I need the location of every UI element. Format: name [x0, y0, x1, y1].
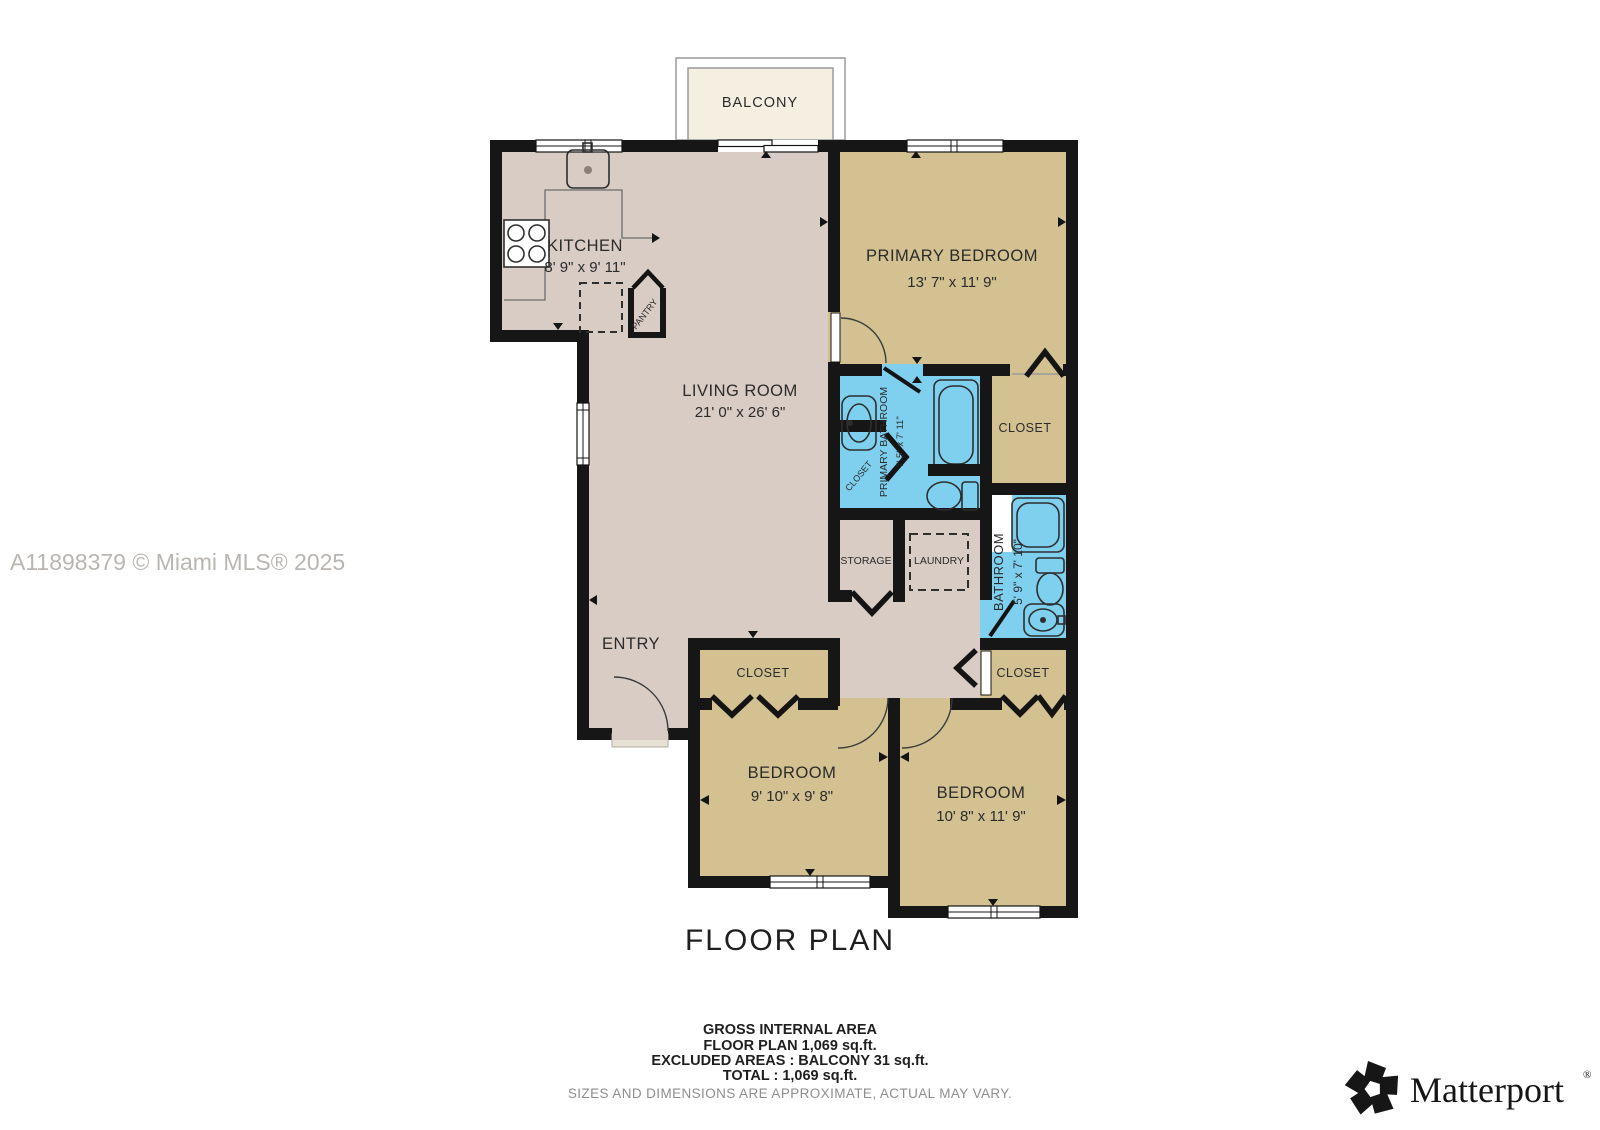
primary-bathroom-label: PRIMARY BATHROOM [878, 387, 890, 497]
footer-area-summary: GROSS INTERNAL AREA FLOOR PLAN 1,069 sq.… [568, 1022, 1012, 1101]
closet-bed1-label: CLOSET [736, 666, 789, 680]
closet2-door-leaf [981, 651, 991, 695]
matterport-reg-mark: ® [1583, 1069, 1591, 1081]
storage-label: STORAGE [840, 555, 891, 567]
bathroom-dims: 5' 9" x 7' 10" [1011, 539, 1025, 605]
matterport-logo: Matterport ® [1344, 1061, 1592, 1119]
matterport-wordmark: Matterport [1410, 1070, 1564, 1110]
living-room-dims: 21' 0" x 26' 6" [695, 404, 786, 421]
mls-watermark: A11898379 © Miami MLS® 2025 [10, 549, 345, 575]
floor-plan-canvas: BALCONY KITCHEN 8' 9" x 9' 11" PRIMARY B… [0, 0, 1600, 1130]
bedroom1-floor [700, 698, 888, 876]
matterport-pinwheel-icon [1344, 1061, 1404, 1119]
bedroom1-dims: 9' 10" x 9' 8" [751, 788, 833, 805]
stove-icon [504, 220, 549, 267]
kitchen-dims: 8' 9" x 9' 11" [544, 259, 625, 276]
pbr-door-leaf [831, 313, 840, 362]
footer-total-area: TOTAL : 1,069 sq.ft. [723, 1068, 858, 1084]
bathroom-label: BATHROOM [991, 533, 1006, 611]
primary-bedroom-dims: 13' 7" x 11' 9" [907, 274, 997, 291]
bedroom2-floor [900, 698, 1066, 906]
footer-floor-plan-area: FLOOR PLAN 1,069 sq.ft. [703, 1038, 876, 1054]
hallway-floor [828, 602, 980, 698]
kitchen-label: KITCHEN [547, 237, 623, 255]
entry-label: ENTRY [602, 635, 660, 653]
primary-bedroom-label: PRIMARY BEDROOM [866, 247, 1038, 265]
footer-excluded-areas: EXCLUDED AREAS : BALCONY 31 sq.ft. [651, 1053, 928, 1069]
pbath-stub-wall [928, 464, 980, 476]
page-title: FLOOR PLAN [685, 924, 895, 957]
footer-gross-area: GROSS INTERNAL AREA [703, 1022, 878, 1038]
footer-disclaimer: SIZES AND DIMENSIONS ARE APPROXIMATE, AC… [568, 1086, 1012, 1101]
doorgap-entry [612, 728, 668, 740]
laundry-label: LAUNDRY [914, 555, 964, 567]
bedroom1-label: BEDROOM [748, 764, 837, 782]
floor-plan-page: BALCONY KITCHEN 8' 9" x 9' 11" PRIMARY B… [0, 0, 1600, 1130]
balcony-label: BALCONY [722, 95, 798, 111]
closet-bed2-label: CLOSET [996, 666, 1049, 680]
bedroom2-label: BEDROOM [937, 784, 1026, 802]
bedroom2-dims: 10' 8" x 11' 9" [936, 808, 1026, 825]
primary-closet-label: CLOSET [998, 421, 1051, 435]
primary-bathroom-dims: 7' 5" x 7' 11" [895, 416, 906, 467]
living-room-label: LIVING ROOM [682, 382, 798, 400]
